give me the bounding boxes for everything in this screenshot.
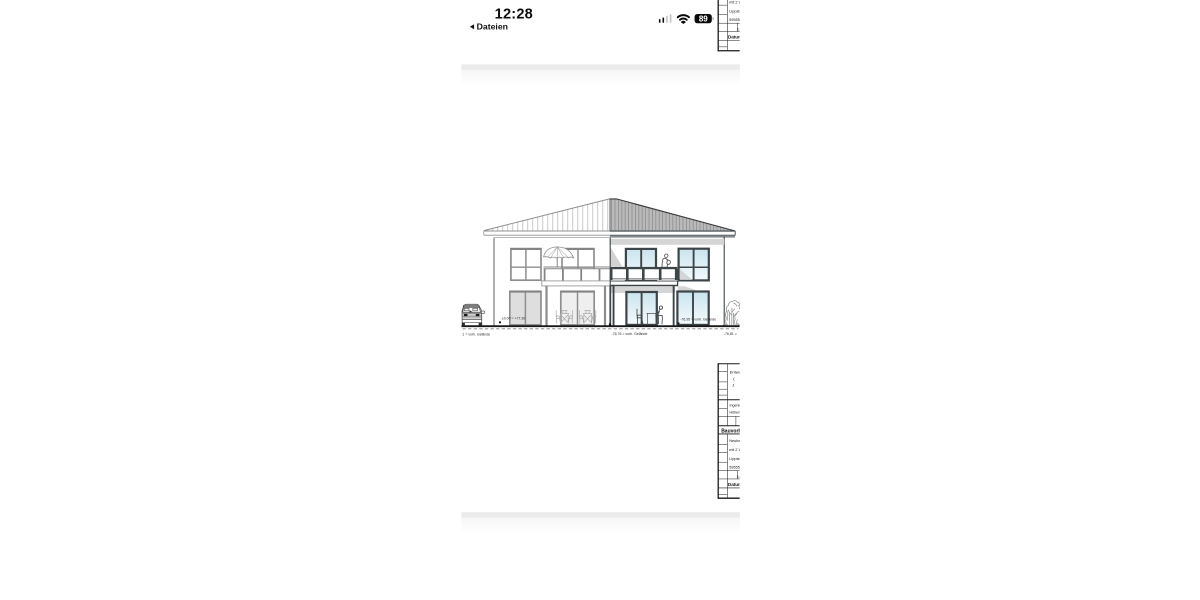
svg-text:±0.00 = +77.30: ±0.00 = +77.30 [502,317,526,321]
svg-text:1 = vorh. Gelände: 1 = vorh. Gelände [462,333,490,337]
svg-text:Dateien: Dateien [477,22,508,32]
svg-text:12:28: 12:28 [495,7,533,23]
svg-text:-76,81 =: -76,81 = [724,332,737,336]
svg-text:89: 89 [699,14,708,23]
svg-text:-76,76 = vorh. Gelände: -76,76 = vorh. Gelände [612,332,648,336]
svg-text:-76,95 = vorh. Gelände: -76,95 = vorh. Gelände [680,317,716,321]
